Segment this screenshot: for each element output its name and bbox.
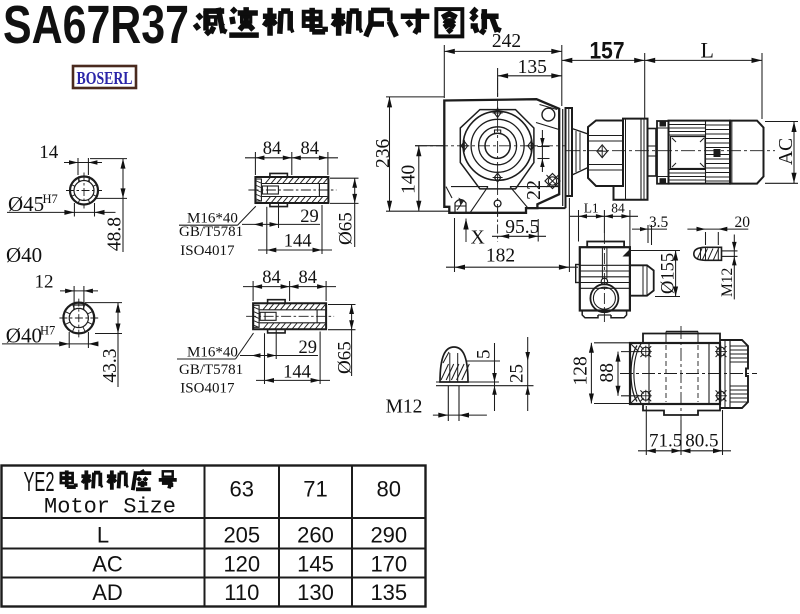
svg-text:M16*40: M16*40	[187, 345, 238, 361]
svg-text:84: 84	[611, 201, 625, 216]
svg-text:290: 290	[370, 523, 407, 548]
svg-text:170: 170	[370, 552, 407, 577]
svg-text:80: 80	[377, 477, 401, 502]
svg-text:GB/T5781: GB/T5781	[179, 224, 243, 240]
svg-text:GB/T5781: GB/T5781	[179, 362, 243, 378]
svg-text:43.3: 43.3	[100, 348, 121, 382]
svg-text:SA67R37: SA67R37	[3, 0, 189, 55]
svg-text:ISO4017: ISO4017	[180, 243, 235, 259]
svg-text:144: 144	[284, 232, 312, 252]
svg-text:25: 25	[507, 364, 528, 383]
svg-text:84: 84	[263, 139, 282, 159]
svg-text:110: 110	[224, 580, 259, 605]
svg-text:3.5: 3.5	[649, 214, 669, 231]
svg-text:Ø65: Ø65	[335, 341, 356, 374]
svg-text:205: 205	[223, 523, 260, 548]
svg-text:Ø155: Ø155	[659, 253, 679, 294]
svg-text:71: 71	[303, 477, 327, 502]
svg-text:95.5: 95.5	[505, 217, 539, 238]
svg-text:ISO4017: ISO4017	[180, 381, 235, 397]
svg-text:AC: AC	[92, 552, 123, 577]
svg-text:260: 260	[297, 523, 334, 548]
svg-text:182: 182	[486, 246, 515, 267]
svg-text:140: 140	[399, 165, 420, 194]
svg-text:L1: L1	[584, 201, 599, 216]
svg-text:AC: AC	[776, 138, 797, 165]
svg-text:BOSERL: BOSERL	[77, 68, 133, 88]
svg-text:88: 88	[597, 363, 618, 383]
svg-text:135: 135	[518, 57, 547, 78]
svg-text:84: 84	[262, 268, 281, 288]
svg-text:135: 135	[370, 580, 407, 605]
svg-text:80.5: 80.5	[685, 431, 718, 452]
svg-text:20: 20	[735, 214, 751, 231]
svg-text:H7: H7	[40, 324, 55, 338]
svg-text:22: 22	[523, 180, 545, 200]
svg-text:12: 12	[35, 272, 54, 293]
svg-text:H7: H7	[43, 192, 58, 206]
svg-text:Ø40: Ø40	[6, 243, 42, 267]
svg-text:YE2: YE2	[24, 466, 55, 497]
svg-text:M12: M12	[386, 397, 423, 418]
svg-text:Motor Size: Motor Size	[44, 495, 176, 520]
svg-text:63: 63	[230, 477, 254, 502]
svg-text:L: L	[701, 38, 714, 63]
svg-text:84: 84	[298, 268, 317, 288]
svg-text:29: 29	[300, 207, 319, 227]
svg-text:Ø65: Ø65	[336, 212, 357, 245]
svg-text:84: 84	[300, 139, 319, 159]
svg-text:48.8: 48.8	[105, 217, 126, 251]
svg-text:120: 120	[223, 552, 260, 577]
svg-text:242: 242	[492, 31, 521, 52]
svg-text:14: 14	[39, 142, 59, 163]
svg-text:AD: AD	[92, 580, 123, 605]
svg-text:71.5: 71.5	[649, 431, 682, 452]
svg-text:X: X	[471, 228, 485, 249]
svg-text:5: 5	[474, 350, 495, 360]
svg-text:145: 145	[297, 552, 334, 577]
svg-text:157: 157	[590, 38, 625, 65]
svg-text:M12: M12	[719, 268, 736, 297]
svg-text:236: 236	[373, 139, 394, 169]
svg-text:29: 29	[298, 338, 317, 358]
svg-text:130: 130	[297, 580, 334, 605]
svg-text:144: 144	[283, 363, 311, 383]
svg-text:128: 128	[571, 356, 592, 385]
svg-text:L: L	[97, 523, 109, 548]
